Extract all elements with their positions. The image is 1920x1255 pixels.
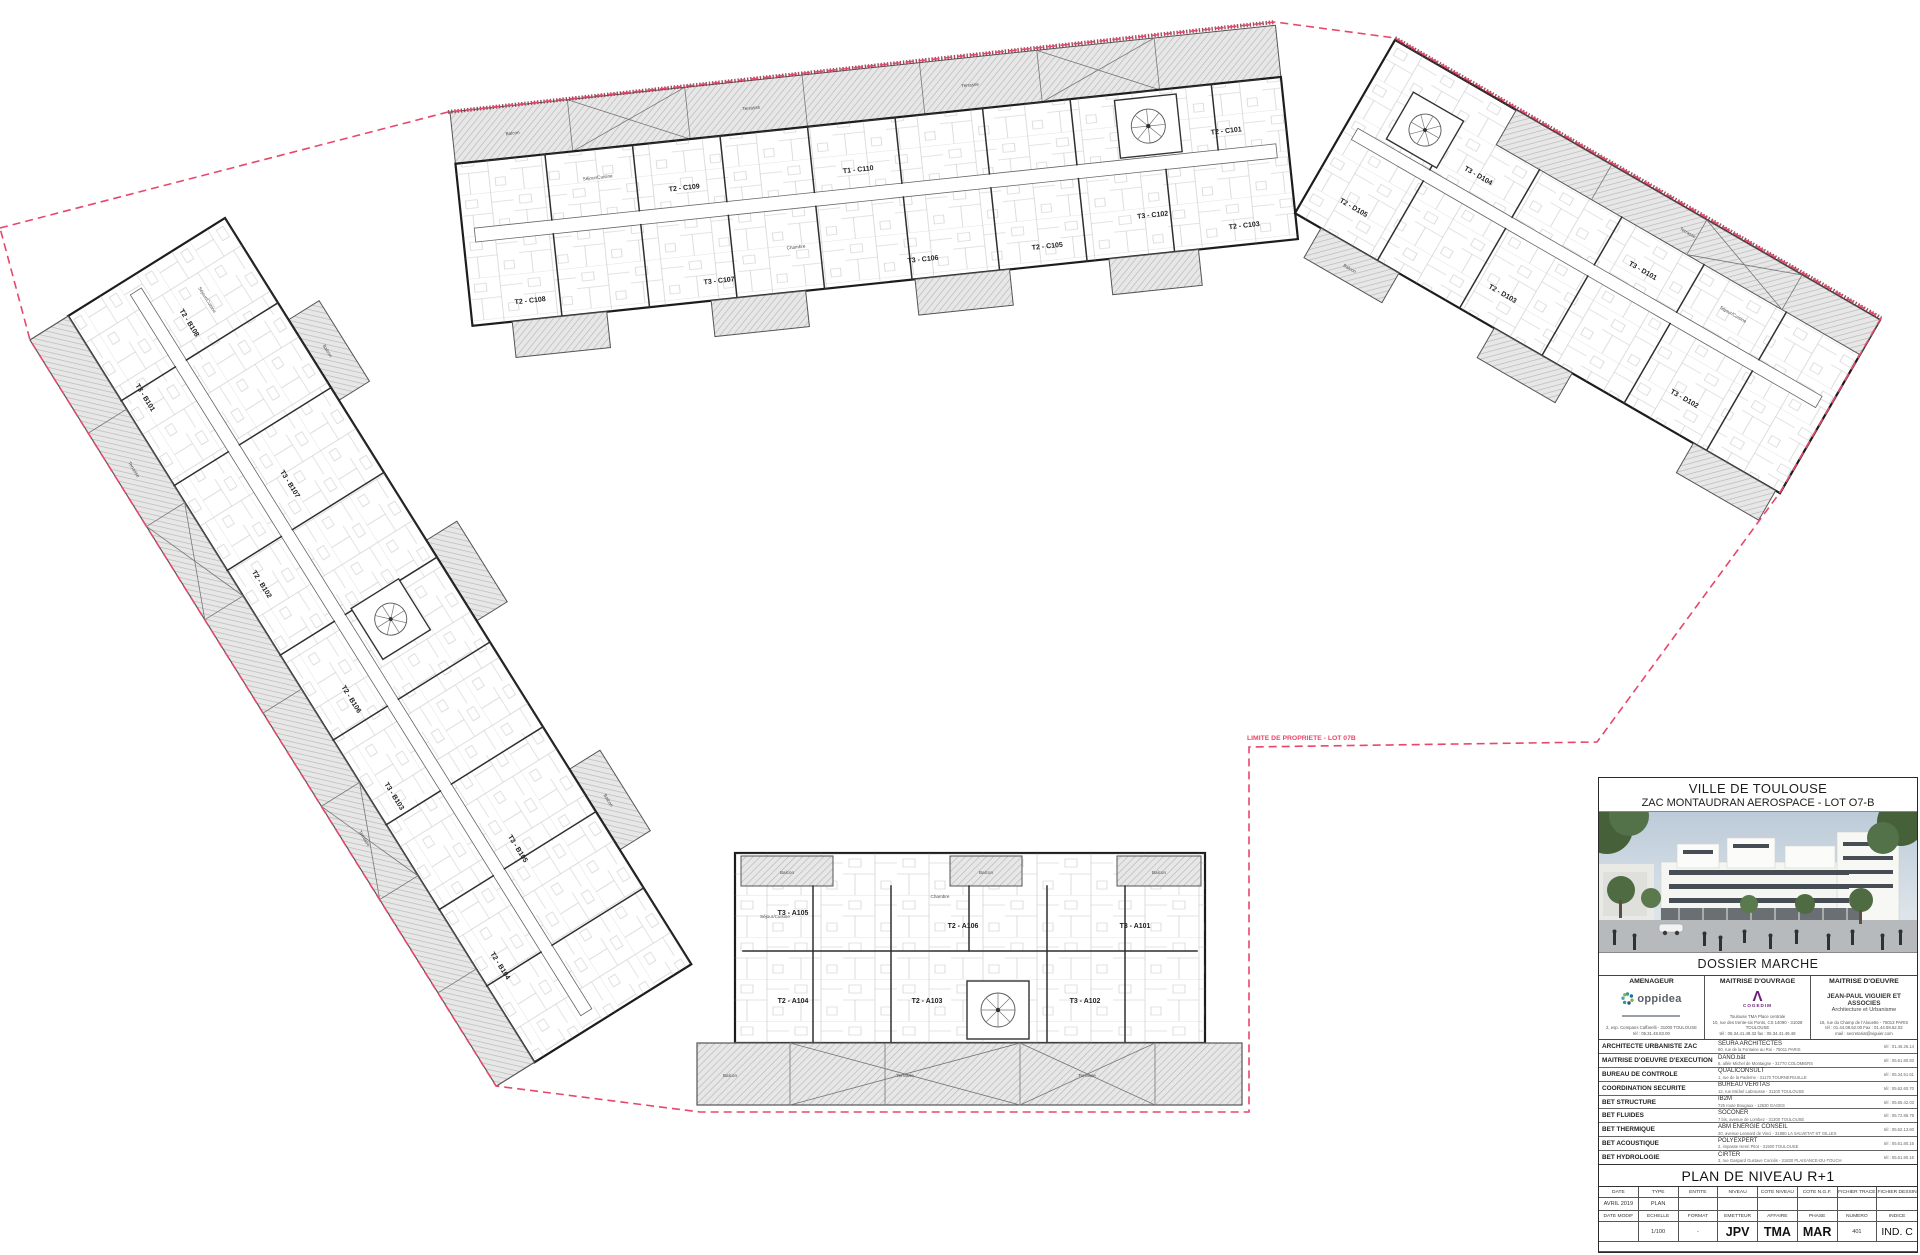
consultant-row: ARCHITECTE URBANISTE ZAC SEURA ARCHITECT… [1599, 1040, 1917, 1053]
grid-header: ENTITE [1679, 1187, 1719, 1198]
grid-header: NIVEAU [1718, 1187, 1758, 1198]
grid-header: EMETTEUR [1718, 1211, 1758, 1222]
building-b: Terrasse Terrasse Balcon Balcon Séjour/C… [30, 199, 722, 1086]
consultant-address: 90, rue de la Fontaine au Roi - 75011 PA… [1718, 1047, 1860, 1052]
grid-header: COTE N.G.F. [1798, 1187, 1838, 1198]
consultant-row: BET STRUCTURE IB2M 725 route Bougaux - 1… [1599, 1095, 1917, 1109]
grid-value-indice: IND. C [1877, 1222, 1917, 1242]
grid-value [1838, 1198, 1878, 1211]
unit-label: T3 - A102 [1070, 998, 1101, 1005]
grid-value-phase: MAR [1798, 1222, 1838, 1242]
grid-value-emetteur: JPV [1718, 1222, 1758, 1242]
building-a: Balcon Balcon Balcon Balcon Terrasse Ter… [697, 853, 1242, 1105]
grid-header: FORMAT [1679, 1211, 1719, 1222]
consultant-row: BET THERMIQUE ABM ENERGIE CONSEIL 20, av… [1599, 1122, 1917, 1136]
consultant-address: 7 bis, avenue de Lombez - 31300 TOULOUSE [1718, 1117, 1860, 1122]
consultant-tel: tél : 05.62.13.60 [1860, 1127, 1914, 1132]
moe-name: JEAN-PAUL VIGUIER ET ASSOCIES [1813, 993, 1915, 1007]
consultant-firm: ABM ENERGIE CONSEIL [1718, 1124, 1860, 1131]
oppidea-pinwheel-icon [1621, 992, 1634, 1005]
project-title: ZAC MONTAUDRAN AEROSPACE - LOT O7-B [1642, 797, 1875, 809]
grid-bottom-strip [1599, 1242, 1917, 1252]
grid-header: DATE [1599, 1187, 1639, 1198]
consultant-tel: tél : 05.61.80.16 [1860, 1155, 1914, 1160]
dossier-title: DOSSIER MARCHE [1599, 953, 1917, 975]
consultant-row: MAITRISE D'OEUVRE D'EXECUTION DANO.bât 6… [1599, 1053, 1917, 1067]
project-render-image [1599, 811, 1917, 953]
grid-value-type: PLAN [1639, 1198, 1679, 1211]
consultant-role: COORDINATION SECURITE [1602, 1085, 1714, 1092]
consultant-firm: SEURA ARCHITECTES [1718, 1041, 1860, 1048]
grid-header: INDICE [1877, 1211, 1917, 1222]
grid-header: TYPE [1639, 1187, 1679, 1198]
consultant-address: 6, allée Michel de Montaigne - 31770 COL… [1718, 1061, 1860, 1066]
grid-value-datemodif [1599, 1222, 1639, 1242]
mo-line3: tél : 05.34.41.49.32 fax : 05.34.41.49.4… [1707, 1031, 1808, 1037]
stair-spiral-a [967, 981, 1029, 1039]
consultant-tel: tél : 05.72.86.78 [1860, 1113, 1914, 1118]
mo-header: MAITRISE D'OUVRAGE [1705, 976, 1811, 987]
city-title: VILLE DE TOULOUSE [1689, 781, 1828, 796]
consultant-row: BUREAU DE CONTROLE QUALICONSULT 1, rue d… [1599, 1067, 1917, 1081]
consultant-row: COORDINATION SECURITE BUREAU VERITAS 12,… [1599, 1081, 1917, 1095]
plan-title: PLAN DE NIVEAU R+1 [1599, 1164, 1917, 1187]
consultant-address: 3, rue Gaspard Gustave Coriolis - 31830 … [1718, 1158, 1860, 1163]
oppidea-logo: oppidea [1621, 992, 1681, 1005]
room-label: Balcon [1152, 870, 1166, 875]
consultant-firm: IB2M [1718, 1096, 1860, 1103]
moe-cell: JEAN-PAUL VIGUIER ET ASSOCIES Architectu… [1811, 987, 1917, 1039]
grid-header: ECHELLE [1639, 1211, 1679, 1222]
consultant-role: BUREAU DE CONTROLE [1602, 1071, 1714, 1078]
oppidea-tagline [1622, 1015, 1680, 1017]
grid-header: NUMERO [1838, 1211, 1878, 1222]
consultant-address: 725 route Bougaux - 12630 GAGES [1718, 1103, 1860, 1108]
parties-table: AMENAGEUR MAITRISE D'OUVRAGE MAITRISE D'… [1599, 975, 1917, 1040]
consultant-row: BET FLUIDES SOCONER 7 bis, avenue de Lom… [1599, 1108, 1917, 1122]
grid-header: PHASE [1798, 1211, 1838, 1222]
unit-label: T3 - A105 [778, 910, 809, 917]
grid-value-affaire: TMA [1758, 1222, 1798, 1242]
grid-value-echelle: 1/100 [1639, 1222, 1679, 1242]
oppidea-wordmark: oppidea [1637, 993, 1681, 1005]
moe-header: MAITRISE D'OEUVRE [1811, 976, 1917, 987]
consultant-address: 20, avenue Leonard de Vinci - 31880 LA S… [1718, 1131, 1860, 1136]
consultant-role: ARCHITECTE URBANISTE ZAC [1602, 1043, 1714, 1050]
boundary-label: LIMITE DE PROPRIETE - LOT 07B [1247, 735, 1356, 742]
building-c: Terrasse Terrasse Balcon Séjour/Cuisine … [450, 25, 1302, 361]
revision-grid: DATE TYPE ENTITE NIVEAU COTE NIVEAU COTE… [1599, 1187, 1917, 1252]
room-label: Balcon [780, 870, 794, 875]
grid-value-date: AVRIL 2019 [1599, 1198, 1639, 1211]
consultant-tel: tél : 05.61.80.16 [1860, 1141, 1914, 1146]
room-label: Chambre [931, 894, 950, 899]
room-label: Balcon [979, 870, 993, 875]
consultant-firm: BUREAU VERITAS [1718, 1082, 1860, 1089]
consultant-address: 12, rue Michel Labrousse - 31100 TOULOUS… [1718, 1089, 1860, 1094]
room-label: Balcon [723, 1073, 737, 1078]
consultant-tel: tél : 05.61.80.83 [1860, 1058, 1914, 1063]
consultant-firm: POLYEXPERT [1718, 1138, 1860, 1145]
room-label: Terrasse [1078, 1073, 1096, 1078]
grid-value-numero: 401 [1838, 1222, 1878, 1242]
grid-value [1877, 1198, 1917, 1211]
consultant-firm: DANO.bât [1718, 1055, 1860, 1062]
mo-line2: 10, rue des trente-six Ponts, CS 14090 -… [1707, 1020, 1808, 1032]
cogedim-logo: Λ COGEDIM [1743, 990, 1772, 1008]
consultant-role: BET HYDROLOGIE [1602, 1154, 1714, 1161]
grid-value [1679, 1198, 1719, 1211]
drawing-sheet: Terrasse Terrasse Balcon Séjour/Cuisine … [0, 0, 1920, 1255]
grid-header: FICHIER DESSIN [1877, 1187, 1917, 1198]
unit-label: T2 - A103 [912, 998, 943, 1005]
consultant-role: MAITRISE D'OEUVRE D'EXECUTION [1602, 1057, 1714, 1064]
unit-label: T2 - A104 [778, 998, 809, 1005]
mo-cell: Λ COGEDIM Toulouse TMA Place centrale 10… [1705, 987, 1811, 1039]
stair-spiral-c [1114, 94, 1182, 158]
consultants-table: ARCHITECTE URBANISTE ZAC SEURA ARCHITECT… [1599, 1040, 1917, 1164]
amenageur-tel: tél : 05.31.48.83.00 [1606, 1031, 1697, 1037]
consultant-firm: SOCONER [1718, 1110, 1860, 1117]
consultant-tel: tél : 05.34.51.61 [1860, 1072, 1914, 1077]
consultant-row: BET ACOUSTIQUE POLYEXPERT 2, impasse Hen… [1599, 1136, 1917, 1150]
consultant-tel: tél : 01.45.26.14 [1860, 1044, 1914, 1049]
unit-label: T3 - A101 [1120, 923, 1151, 930]
consultant-role: BET STRUCTURE [1602, 1099, 1714, 1106]
amenageur-header: AMENAGEUR [1599, 976, 1705, 987]
grid-header: COTE NIVEAU [1758, 1187, 1798, 1198]
consultant-address: 1, rue de la Paderne - 31170 TOURNEFEUIL… [1718, 1075, 1860, 1080]
grid-value [1758, 1198, 1798, 1211]
consultant-row: BET HYDROLOGIE CIRTER 3, rue Gaspard Gus… [1599, 1150, 1917, 1164]
consultant-role: BET THERMIQUE [1602, 1126, 1714, 1133]
unit-label: T2 - A106 [948, 923, 979, 930]
consultant-firm: QUALICONSULT [1718, 1068, 1860, 1075]
title-block-header: VILLE DE TOULOUSE ZAC MONTAUDRAN AEROSPA… [1599, 778, 1917, 811]
moe-line3: mail : secretariat@viguier.com [1820, 1031, 1909, 1037]
consultant-address: 2, impasse Henri Pitot - 31500 TOULOUSE [1718, 1144, 1860, 1149]
cogedim-lambda-icon: Λ [1752, 990, 1762, 1003]
grid-value-format: - [1679, 1222, 1719, 1242]
grid-header: AFFAIRE [1758, 1211, 1798, 1222]
grid-header: FICHIER TRACE [1838, 1187, 1878, 1198]
grid-value [1718, 1198, 1758, 1211]
render-plaza [1599, 920, 1917, 952]
title-block: VILLE DE TOULOUSE ZAC MONTAUDRAN AEROSPA… [1598, 777, 1918, 1253]
building-d: Terrasse Balcon Séjour/Cuisine T3 - D104… [1278, 40, 1880, 523]
consultant-role: BET ACOUSTIQUE [1602, 1140, 1714, 1147]
amenageur-cell: oppidea 2, esp. Compans Caffarelli - 310… [1599, 987, 1705, 1039]
consultant-role: BET FLUIDES [1602, 1112, 1714, 1119]
consultant-tel: tél : 05.65.42.03 [1860, 1100, 1914, 1105]
cogedim-wordmark: COGEDIM [1743, 1003, 1772, 1008]
grid-value [1798, 1198, 1838, 1211]
grid-header: DATE MODIF [1599, 1211, 1639, 1222]
consultant-firm: CIRTER [1718, 1152, 1860, 1159]
moe-subtitle: Architecture et Urbanisme [1813, 1007, 1915, 1013]
consultant-tel: tél : 05.62.60.70 [1860, 1086, 1914, 1091]
room-label: Terrasse [896, 1073, 914, 1078]
